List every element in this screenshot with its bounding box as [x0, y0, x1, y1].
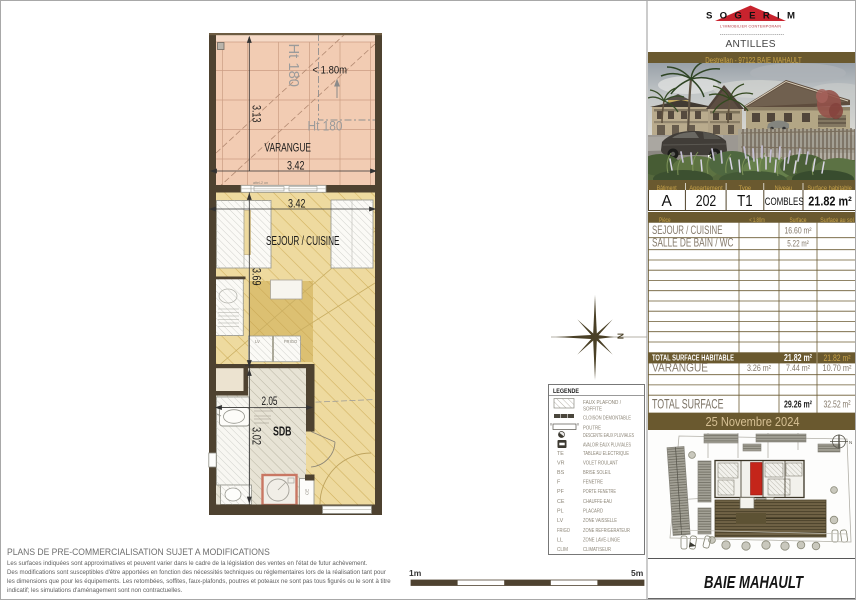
svg-text:7.44 m²: 7.44 m²: [786, 362, 810, 372]
svg-text:VARANGUE: VARANGUE: [652, 360, 708, 374]
svg-text:LV: LV: [557, 518, 564, 524]
svg-text:LL: LL: [557, 538, 563, 544]
svg-text:TABLEAU ELECTRIQUE: TABLEAU ELECTRIQUE: [583, 451, 629, 457]
svg-text:ZONE VAISSELLE: ZONE VAISSELLE: [583, 518, 617, 524]
svg-text:CLIM: CLIM: [557, 547, 568, 553]
svg-text:A: A: [662, 193, 673, 210]
svg-text:DESCENTE EAUX PLUVIALES: DESCENTE EAUX PLUVIALES: [583, 433, 634, 439]
svg-text:FAUX PLAFOND /: FAUX PLAFOND /: [583, 400, 621, 406]
svg-text:5.22 m²: 5.22 m²: [787, 238, 809, 248]
svg-text:25 Novembre 2024: 25 Novembre 2024: [706, 414, 800, 429]
svg-text:VOLET ROULANT: VOLET ROULANT: [583, 461, 619, 467]
svg-text:T1: T1: [737, 193, 753, 210]
svg-text:ZONE REFRIGERATEUR: ZONE REFRIGERATEUR: [583, 528, 630, 534]
svg-text:3.69: 3.69: [250, 268, 264, 286]
svg-text:CHAUFFE-EAU: CHAUFFE-EAU: [583, 499, 612, 505]
svg-text:21.82 m²: 21.82 m²: [808, 193, 852, 208]
svg-text:CE: CE: [557, 499, 565, 505]
svg-text:CE: CE: [305, 489, 310, 495]
svg-text:F: F: [557, 480, 561, 486]
svg-text:COMBLES: COMBLES: [765, 196, 804, 208]
svg-text:SALLE DE BAIN / WC: SALLE DE BAIN / WC: [652, 235, 734, 249]
svg-text:SEJOUR / CUISINE: SEJOUR / CUISINE: [266, 233, 340, 248]
svg-text:TE: TE: [557, 451, 564, 457]
svg-text:BAIE MAHAULT: BAIE MAHAULT: [704, 572, 804, 592]
svg-text:21.82 m²: 21.82 m²: [824, 352, 851, 362]
svg-text:PF: PF: [557, 489, 565, 495]
svg-text:TOTAL SURFACE: TOTAL SURFACE: [652, 396, 724, 411]
svg-text:32.52 m²: 32.52 m²: [824, 399, 851, 410]
svg-text:N: N: [616, 333, 626, 339]
svg-text:LEGENDE: LEGENDE: [553, 388, 580, 395]
svg-text:3.26 m²: 3.26 m²: [747, 362, 771, 372]
svg-text:FRIGO: FRIGO: [284, 339, 298, 344]
svg-text:LV: LV: [255, 339, 260, 344]
svg-text:BS: BS: [557, 470, 565, 476]
svg-text:PORTE FENETRE: PORTE FENETRE: [583, 489, 616, 495]
svg-text:3.02: 3.02: [250, 427, 264, 445]
svg-text:CLIMATISEUR: CLIMATISEUR: [583, 547, 611, 553]
svg-text:BRISE SOLEIL: BRISE SOLEIL: [583, 470, 611, 476]
svg-text:FENETRE: FENETRE: [583, 480, 603, 486]
svg-text:3.42: 3.42: [287, 159, 305, 173]
svg-text:PLACARD: PLACARD: [583, 509, 603, 515]
svg-text:Ht 180: Ht 180: [285, 44, 301, 88]
svg-text:VR: VR: [557, 461, 565, 467]
svg-text:2.05: 2.05: [262, 394, 278, 408]
svg-text:CLOISON DEMONTABLE: CLOISON DEMONTABLE: [583, 416, 631, 422]
svg-text:29.26 m²: 29.26 m²: [784, 399, 812, 410]
svg-text:N: N: [849, 440, 852, 445]
svg-text:SOFFITE: SOFFITE: [583, 407, 602, 413]
svg-text:202: 202: [696, 193, 717, 210]
svg-text:3.13: 3.13: [250, 105, 264, 123]
svg-text:3.42: 3.42: [288, 197, 306, 211]
svg-text:VARANGUE: VARANGUE: [265, 141, 312, 155]
svg-text:ANTILLES: ANTILLES: [726, 39, 776, 50]
svg-text:Ht 180: Ht 180: [308, 118, 343, 134]
svg-text:16.60 m²: 16.60 m²: [785, 225, 812, 235]
svg-text:POUTRE: POUTRE: [583, 426, 601, 432]
svg-text:10.70 m²: 10.70 m²: [823, 362, 852, 372]
svg-text:SDB: SDB: [273, 425, 292, 439]
svg-text:5m: 5m: [631, 568, 644, 578]
svg-text:L'IMMOBILIER CONTEMPORAIN: L'IMMOBILIER CONTEMPORAIN: [720, 25, 781, 29]
svg-text:< 1.80m: < 1.80m: [313, 65, 348, 77]
svg-text:attel-2 on: attel-2 on: [253, 181, 268, 185]
svg-text:AVALOIR EAUX PLUVIALES: AVALOIR EAUX PLUVIALES: [583, 443, 631, 449]
svg-text:FRIGO: FRIGO: [557, 528, 570, 534]
svg-text:ZONE LAVE-LINGE: ZONE LAVE-LINGE: [583, 538, 620, 544]
svg-text:PL: PL: [557, 509, 564, 515]
